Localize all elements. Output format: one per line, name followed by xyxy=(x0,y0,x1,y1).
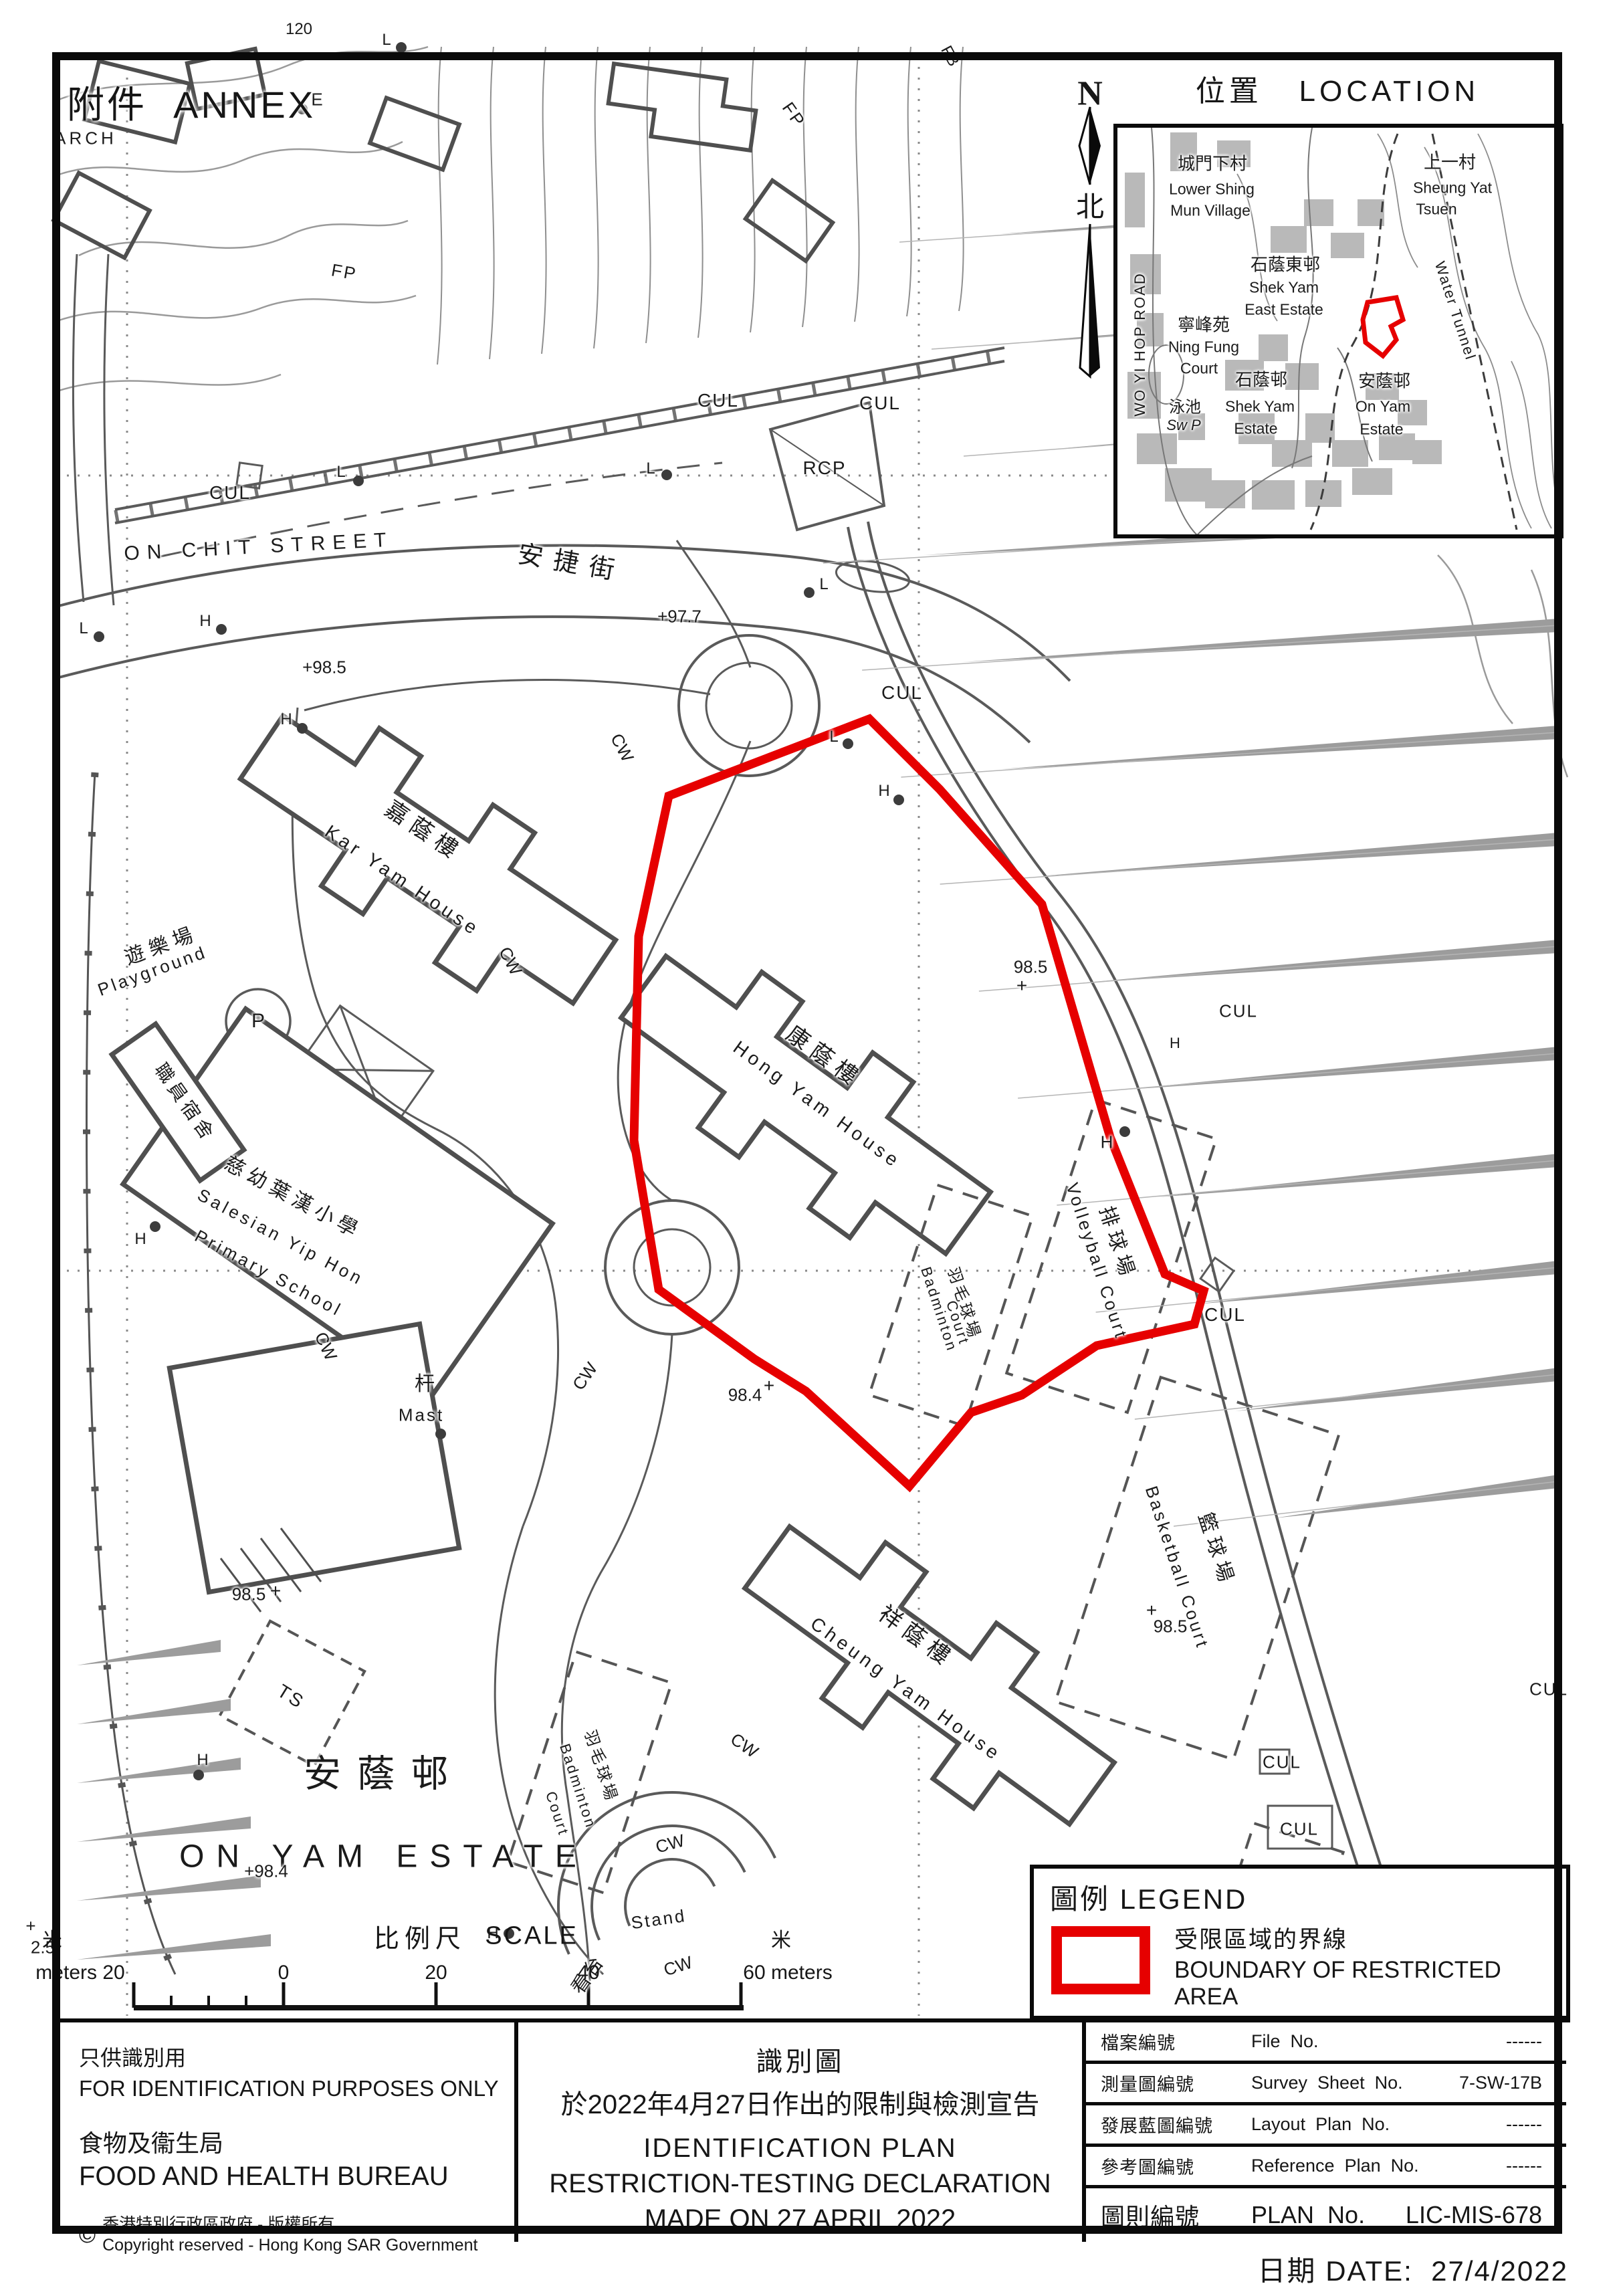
map-label: +98.4 xyxy=(244,1861,288,1882)
map-label: +97.7 xyxy=(657,607,701,627)
map-label: + xyxy=(764,1375,774,1396)
map-label: 120 xyxy=(286,20,312,39)
map-label: + xyxy=(25,1916,35,1937)
map-label: ON YAM ESTATE xyxy=(179,1839,588,1875)
title-block: 只供識別用 FOR IDENTIFICATION PURPOSES ONLY 食… xyxy=(52,2018,1570,2242)
map-label: CUL xyxy=(1219,1001,1258,1022)
plan-subtitle-en: RESTRICTION-TESTING DECLARATION xyxy=(518,2169,1082,2199)
map-label: +98.5 xyxy=(302,657,346,678)
legend-box: 圖例 LEGEND 受限區域的界線 BOUNDARY OF RESTRICTED… xyxy=(1030,1865,1570,2020)
map-label: P xyxy=(251,1010,265,1033)
annex-title: 附件 ANNEX xyxy=(67,75,316,129)
table-row-survey-sheet: 測量圖編號 Survey Sheet No. 7-SW-17B xyxy=(1086,2064,1566,2105)
date-value: 27/4/2022 xyxy=(1431,2255,1568,2287)
row-label-zh: 參考圖編號 xyxy=(1101,2153,1251,2179)
scale-unit-left: 米 xyxy=(42,1923,62,1953)
table-row-layout-plan: 發展藍圖編號 Layout Plan No. ------ xyxy=(1086,2105,1566,2147)
bureau-zh: 食物及衞生局 xyxy=(79,2124,514,2159)
date-label-en: DATE: xyxy=(1325,2255,1413,2287)
row-value: ------ xyxy=(1506,2031,1551,2052)
plan-title-cell: 識別圖 於2022年4月27日作出的限制與檢測宣告 IDENTIFICATION… xyxy=(518,2022,1086,2242)
map-label: + xyxy=(1016,975,1027,997)
map-label: CUL xyxy=(697,390,739,411)
row-label-en: Reference Plan No. xyxy=(1251,2156,1419,2176)
map-label: 98.4 xyxy=(728,1385,762,1406)
note-en: FOR IDENTIFICATION PURPOSES ONLY xyxy=(79,2076,514,2101)
note-zh: 只供識別用 xyxy=(79,2041,514,2072)
scale-label-left: meters 20 xyxy=(35,1962,124,1984)
copyright-en: Copyright reserved - Hong Kong SAR Gover… xyxy=(102,2236,477,2255)
map-label: L xyxy=(79,619,88,638)
row-value: LIC-MIS-678 xyxy=(1406,2201,1551,2229)
map-label: L xyxy=(382,31,391,49)
map-label: + xyxy=(270,1580,281,1602)
location-title: 位置 LOCATION xyxy=(1137,67,1538,110)
building-mast-block xyxy=(169,1324,459,1592)
row-label-zh: 發展藍圖編號 xyxy=(1101,2111,1251,2137)
copyright-line: © 香港特別行政區政府 - 版權所有 Copyright reserved - … xyxy=(79,2214,514,2257)
date-label-zh: 日期 xyxy=(1258,2255,1317,2287)
map-label: H xyxy=(280,710,292,729)
map-label: 安蔭邨 xyxy=(304,1744,464,1798)
plan-title-zh: 識別圖 xyxy=(518,2040,1082,2079)
map-label: H xyxy=(1101,1132,1113,1153)
location-inset-frame xyxy=(1113,124,1563,538)
legend-item-zh: 受限區域的界線 xyxy=(1174,1921,1347,1955)
north-arrow-icon xyxy=(1079,107,1101,377)
table-row-reference-plan: 參考圖編號 Reference Plan No. ------ xyxy=(1086,2147,1566,2188)
building-cheung-yam-house xyxy=(720,1491,1140,1859)
basketball-court xyxy=(1055,1377,1339,1760)
map-label: ARCH xyxy=(54,128,117,149)
map-label: CUL xyxy=(881,682,923,704)
row-value: 7-SW-17B xyxy=(1459,2073,1551,2093)
scale-title-zh: 比例尺 xyxy=(374,1918,466,1955)
point-symbol xyxy=(150,1221,160,1232)
point-symbol xyxy=(193,1770,204,1780)
location-title-zh: 位置 xyxy=(1196,75,1263,108)
map-label: CUL xyxy=(1280,1819,1319,1840)
scale-label-0: 0 xyxy=(278,1962,290,1984)
row-label-zh: 圖則編號 xyxy=(1101,2198,1251,2232)
row-label-en: Survey Sheet No. xyxy=(1251,2073,1403,2093)
map-label: L xyxy=(829,728,838,746)
scale-label-right: 60 meters xyxy=(743,1962,832,1984)
plan-title-en: IDENTIFICATION PLAN xyxy=(518,2133,1082,2164)
point-symbol xyxy=(843,738,853,749)
point-symbol xyxy=(94,631,104,642)
map-label: 98.5 xyxy=(1014,957,1048,978)
row-label-en: PLAN No. xyxy=(1251,2201,1365,2229)
bureau-en: FOOD AND HEALTH BUREAU xyxy=(79,2162,514,2192)
map-label: L xyxy=(646,459,655,478)
table-row-file-no: 檔案編號 File No. ------ xyxy=(1086,2022,1566,2064)
map-label: L xyxy=(819,575,828,594)
copyright-icon: © xyxy=(79,2222,96,2249)
identification-note-cell: 只供識別用 FOR IDENTIFICATION PURPOSES ONLY 食… xyxy=(52,2022,518,2242)
row-label-zh: 測量圖編號 xyxy=(1101,2070,1251,2096)
north-letter: N xyxy=(1077,74,1103,114)
map-label: H xyxy=(878,782,889,801)
point-symbol xyxy=(661,469,672,480)
scale-title-en: SCALE xyxy=(485,1922,578,1951)
map-label: CUL xyxy=(859,393,901,414)
row-label-zh: 檔案編號 xyxy=(1101,2028,1251,2055)
restricted-area-swatch xyxy=(1051,1926,1150,1994)
point-symbol xyxy=(216,624,227,635)
scale-label-20: 20 xyxy=(425,1962,447,1984)
map-label: 杆 xyxy=(415,1367,435,1396)
location-title-en: LOCATION xyxy=(1299,75,1480,108)
map-label: CUL xyxy=(1529,1679,1568,1700)
annex-title-en: ANNEX xyxy=(173,84,316,126)
map-label: H xyxy=(134,1230,146,1249)
row-value: ------ xyxy=(1506,2114,1551,2135)
row-value: ------ xyxy=(1506,2156,1551,2176)
legend-title: 圖例 LEGEND xyxy=(1050,1877,1247,1917)
point-symbol xyxy=(396,42,407,53)
scale-unit-right: 米 xyxy=(771,1923,791,1953)
plan-subtitle-zh: 於2022年4月27日作出的限制與檢測宣告 xyxy=(518,2083,1082,2121)
point-symbol xyxy=(893,795,904,805)
row-label-en: File No. xyxy=(1251,2031,1319,2052)
legend-item-en: BOUNDARY OF RESTRICTED AREA xyxy=(1174,1957,1566,2010)
point-symbol xyxy=(297,723,308,734)
map-label: 98.5 xyxy=(1154,1616,1188,1637)
row-label-en: Layout Plan No. xyxy=(1251,2114,1390,2135)
point-symbol xyxy=(1119,1126,1130,1137)
scale-bar xyxy=(134,1982,744,2008)
stream-lines xyxy=(437,47,964,364)
map-label: RCP xyxy=(802,457,846,479)
date-line: 日期 DATE: 27/4/2022 xyxy=(1258,2249,1568,2289)
building-kar-yam-house xyxy=(216,680,640,1039)
copyright-zh: 香港特別行政區政府 - 版權所有 xyxy=(102,2215,334,2234)
map-label: H xyxy=(199,612,211,631)
map-label: H xyxy=(197,1751,208,1770)
map-label: H xyxy=(1170,1035,1180,1052)
point-symbol xyxy=(804,587,815,598)
map-label: L xyxy=(336,463,345,482)
point-symbol xyxy=(435,1429,446,1439)
map-label: CUL xyxy=(1204,1304,1246,1326)
map-label: FP xyxy=(330,259,359,284)
map-label: Mast xyxy=(399,1405,444,1426)
scale-label-40: 40 xyxy=(577,1962,599,1984)
point-symbol xyxy=(353,476,364,486)
plan-date-en: MADE ON 27 APRIL 2022 xyxy=(518,2204,1082,2234)
table-row-plan-no: 圖則編號 PLAN No. LIC-MIS-678 xyxy=(1086,2188,1566,2242)
identification-plan-sheet: 120LFBARCHEFPFPCULCULCULRCPLLLLON CHIT S… xyxy=(0,0,1623,2296)
map-label: CUL xyxy=(209,482,251,504)
map-label: CUL xyxy=(1263,1752,1301,1773)
north-zh-label: 北 xyxy=(1076,185,1104,225)
map-label: 98.5 xyxy=(232,1584,266,1605)
plan-reference-table: 檔案編號 File No. ------ 測量圖編號 Survey Sheet … xyxy=(1086,2022,1566,2242)
annex-title-zh: 附件 xyxy=(67,84,147,126)
